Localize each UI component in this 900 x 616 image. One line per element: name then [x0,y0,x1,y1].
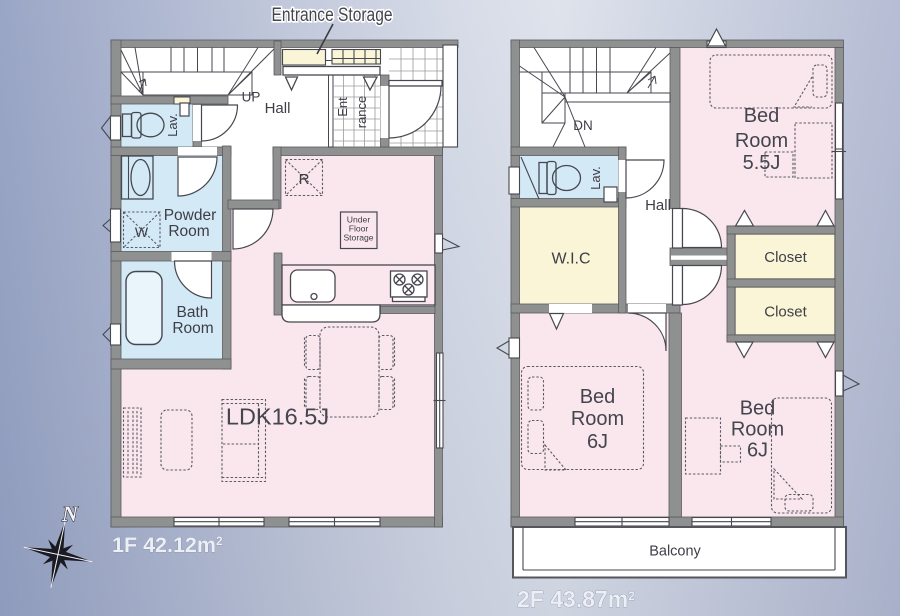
svg-text:Closet: Closet [764,304,807,321]
svg-text:W: W [135,224,149,240]
svg-text:2F 43.87m2: 2F 43.87m2 [517,586,635,612]
svg-text:Lav.: Lav. [588,166,603,190]
svg-text:Hall: Hall [645,197,671,214]
svg-text:Powder: Powder [164,207,217,224]
svg-text:rance: rance [354,96,369,129]
svg-text:W.I.C: W.I.C [551,251,590,268]
svg-text:Room: Room [571,408,624,430]
svg-text:6J: 6J [587,431,608,453]
svg-text:Ent: Ent [335,97,350,117]
svg-text:Hall: Hall [265,100,291,117]
svg-text:Bed: Bed [744,105,780,127]
svg-text:Bed: Bed [580,386,616,408]
svg-text:Entrance Storage: Entrance Storage [272,5,393,26]
svg-text:LDK16.5J: LDK16.5J [226,404,329,430]
svg-text:1F 42.12m2: 1F 42.12m2 [112,533,223,557]
svg-text:Bath: Bath [177,304,209,321]
svg-text:5.5J: 5.5J [743,152,781,174]
svg-text:Bed: Bed [740,398,776,420]
svg-text:Balcony: Balcony [649,544,701,560]
svg-text:Room: Room [172,320,213,337]
svg-text:Room: Room [731,419,784,441]
svg-text:N: N [61,501,79,526]
svg-text:Storage: Storage [343,233,373,243]
svg-text:UP: UP [242,90,261,105]
svg-text:DN: DN [573,118,593,133]
svg-text:R: R [299,171,310,188]
svg-text:Room: Room [168,223,209,240]
svg-text:6J: 6J [747,440,768,462]
svg-text:Closet: Closet [764,249,807,266]
svg-text:Lav.: Lav. [165,113,180,137]
svg-text:Room: Room [735,130,788,152]
